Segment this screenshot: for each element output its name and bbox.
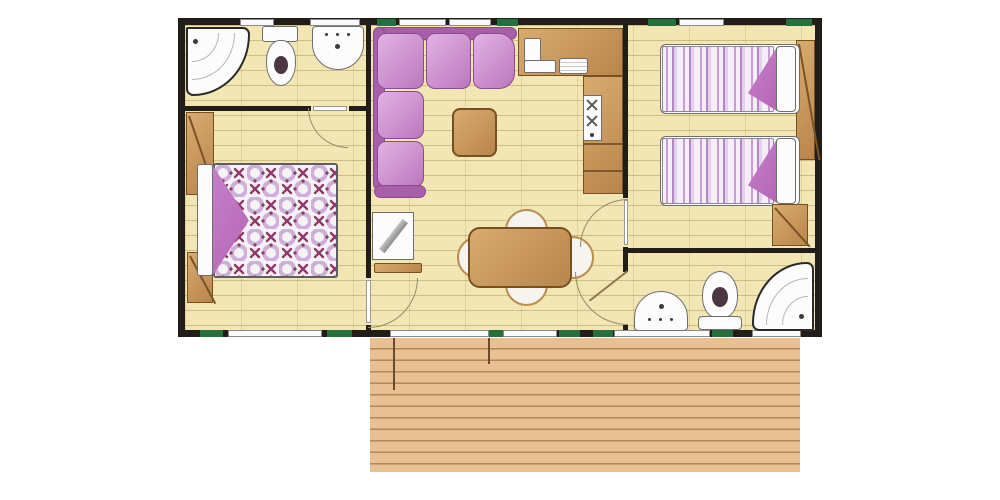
- basin-drain: [335, 44, 340, 49]
- vent-green: [497, 19, 518, 26]
- window: [310, 19, 360, 26]
- window: [240, 19, 274, 26]
- deck-terrace: [370, 338, 800, 472]
- counter-seam: [584, 143, 622, 145]
- deck-divider-line: [488, 338, 490, 364]
- wall-bathroom-left-a: [185, 106, 311, 111]
- tap-dot: [670, 318, 673, 321]
- window: [228, 330, 322, 337]
- window: [679, 19, 724, 26]
- vent-green: [377, 19, 396, 26]
- sofa-cushion: [377, 33, 424, 89]
- toilet-base: [698, 316, 742, 330]
- toilet-bowl: [702, 271, 738, 319]
- sofa-cushion: [377, 141, 424, 187]
- shower-drain: [193, 39, 198, 44]
- toilet-seat-center: [712, 287, 728, 307]
- patio-door-window: [390, 330, 489, 337]
- tap-dot: [325, 33, 328, 36]
- hob-burner: [586, 115, 598, 127]
- deck-divider-line: [393, 338, 395, 390]
- wall-left: [178, 18, 185, 337]
- pillow: [776, 138, 796, 204]
- tap-dot: [648, 318, 651, 321]
- cabinet-door-line: [774, 207, 810, 247]
- vent-green: [712, 330, 733, 337]
- window: [449, 19, 491, 26]
- tv-unit: [372, 212, 414, 260]
- vent-green: [593, 330, 613, 337]
- sofa-cushion: [426, 33, 471, 89]
- wall-kitchen-bedroom: [623, 25, 628, 198]
- shower-drain: [799, 314, 804, 319]
- basin-drain: [659, 304, 664, 309]
- hob-burner: [586, 99, 598, 111]
- vent-green: [559, 330, 580, 337]
- toilet-bowl: [266, 40, 296, 86]
- counter-seam: [584, 170, 622, 172]
- bed-headboard: [197, 164, 213, 276]
- pillow: [776, 46, 796, 112]
- dining-table: [468, 227, 572, 288]
- wall-bathroom-right-top: [628, 248, 815, 253]
- coffee-table: [452, 108, 497, 157]
- sofa-cushion-end: [473, 33, 515, 89]
- toilet-seat-center: [274, 56, 288, 74]
- kitchen-hob: [583, 95, 602, 141]
- wall-bedroom-living-upper: [366, 25, 371, 278]
- kitchen-drainer: [559, 58, 588, 74]
- vent-green: [200, 330, 223, 337]
- vent-green: [786, 19, 812, 26]
- sofa-cushion: [377, 91, 424, 139]
- tv-screen: [379, 219, 408, 253]
- vent-green: [327, 330, 352, 337]
- wall-bathroom-left-b: [349, 106, 366, 111]
- kitchen-sink-l-foot: [524, 60, 556, 73]
- window: [614, 330, 710, 337]
- tv-shelf: [374, 263, 422, 273]
- tap-dot: [659, 318, 662, 321]
- vent-green: [648, 19, 676, 26]
- window: [399, 19, 446, 26]
- window: [752, 330, 801, 337]
- sofa-armrest: [374, 185, 426, 198]
- hob-knob: [590, 133, 594, 137]
- tap-dot: [347, 33, 350, 36]
- window: [503, 330, 557, 337]
- tap-dot: [336, 33, 339, 36]
- bedside-cabinet: [772, 204, 808, 246]
- vent-green: [489, 330, 503, 337]
- wall-right: [815, 18, 822, 337]
- floorplan-canvas: [0, 0, 1000, 500]
